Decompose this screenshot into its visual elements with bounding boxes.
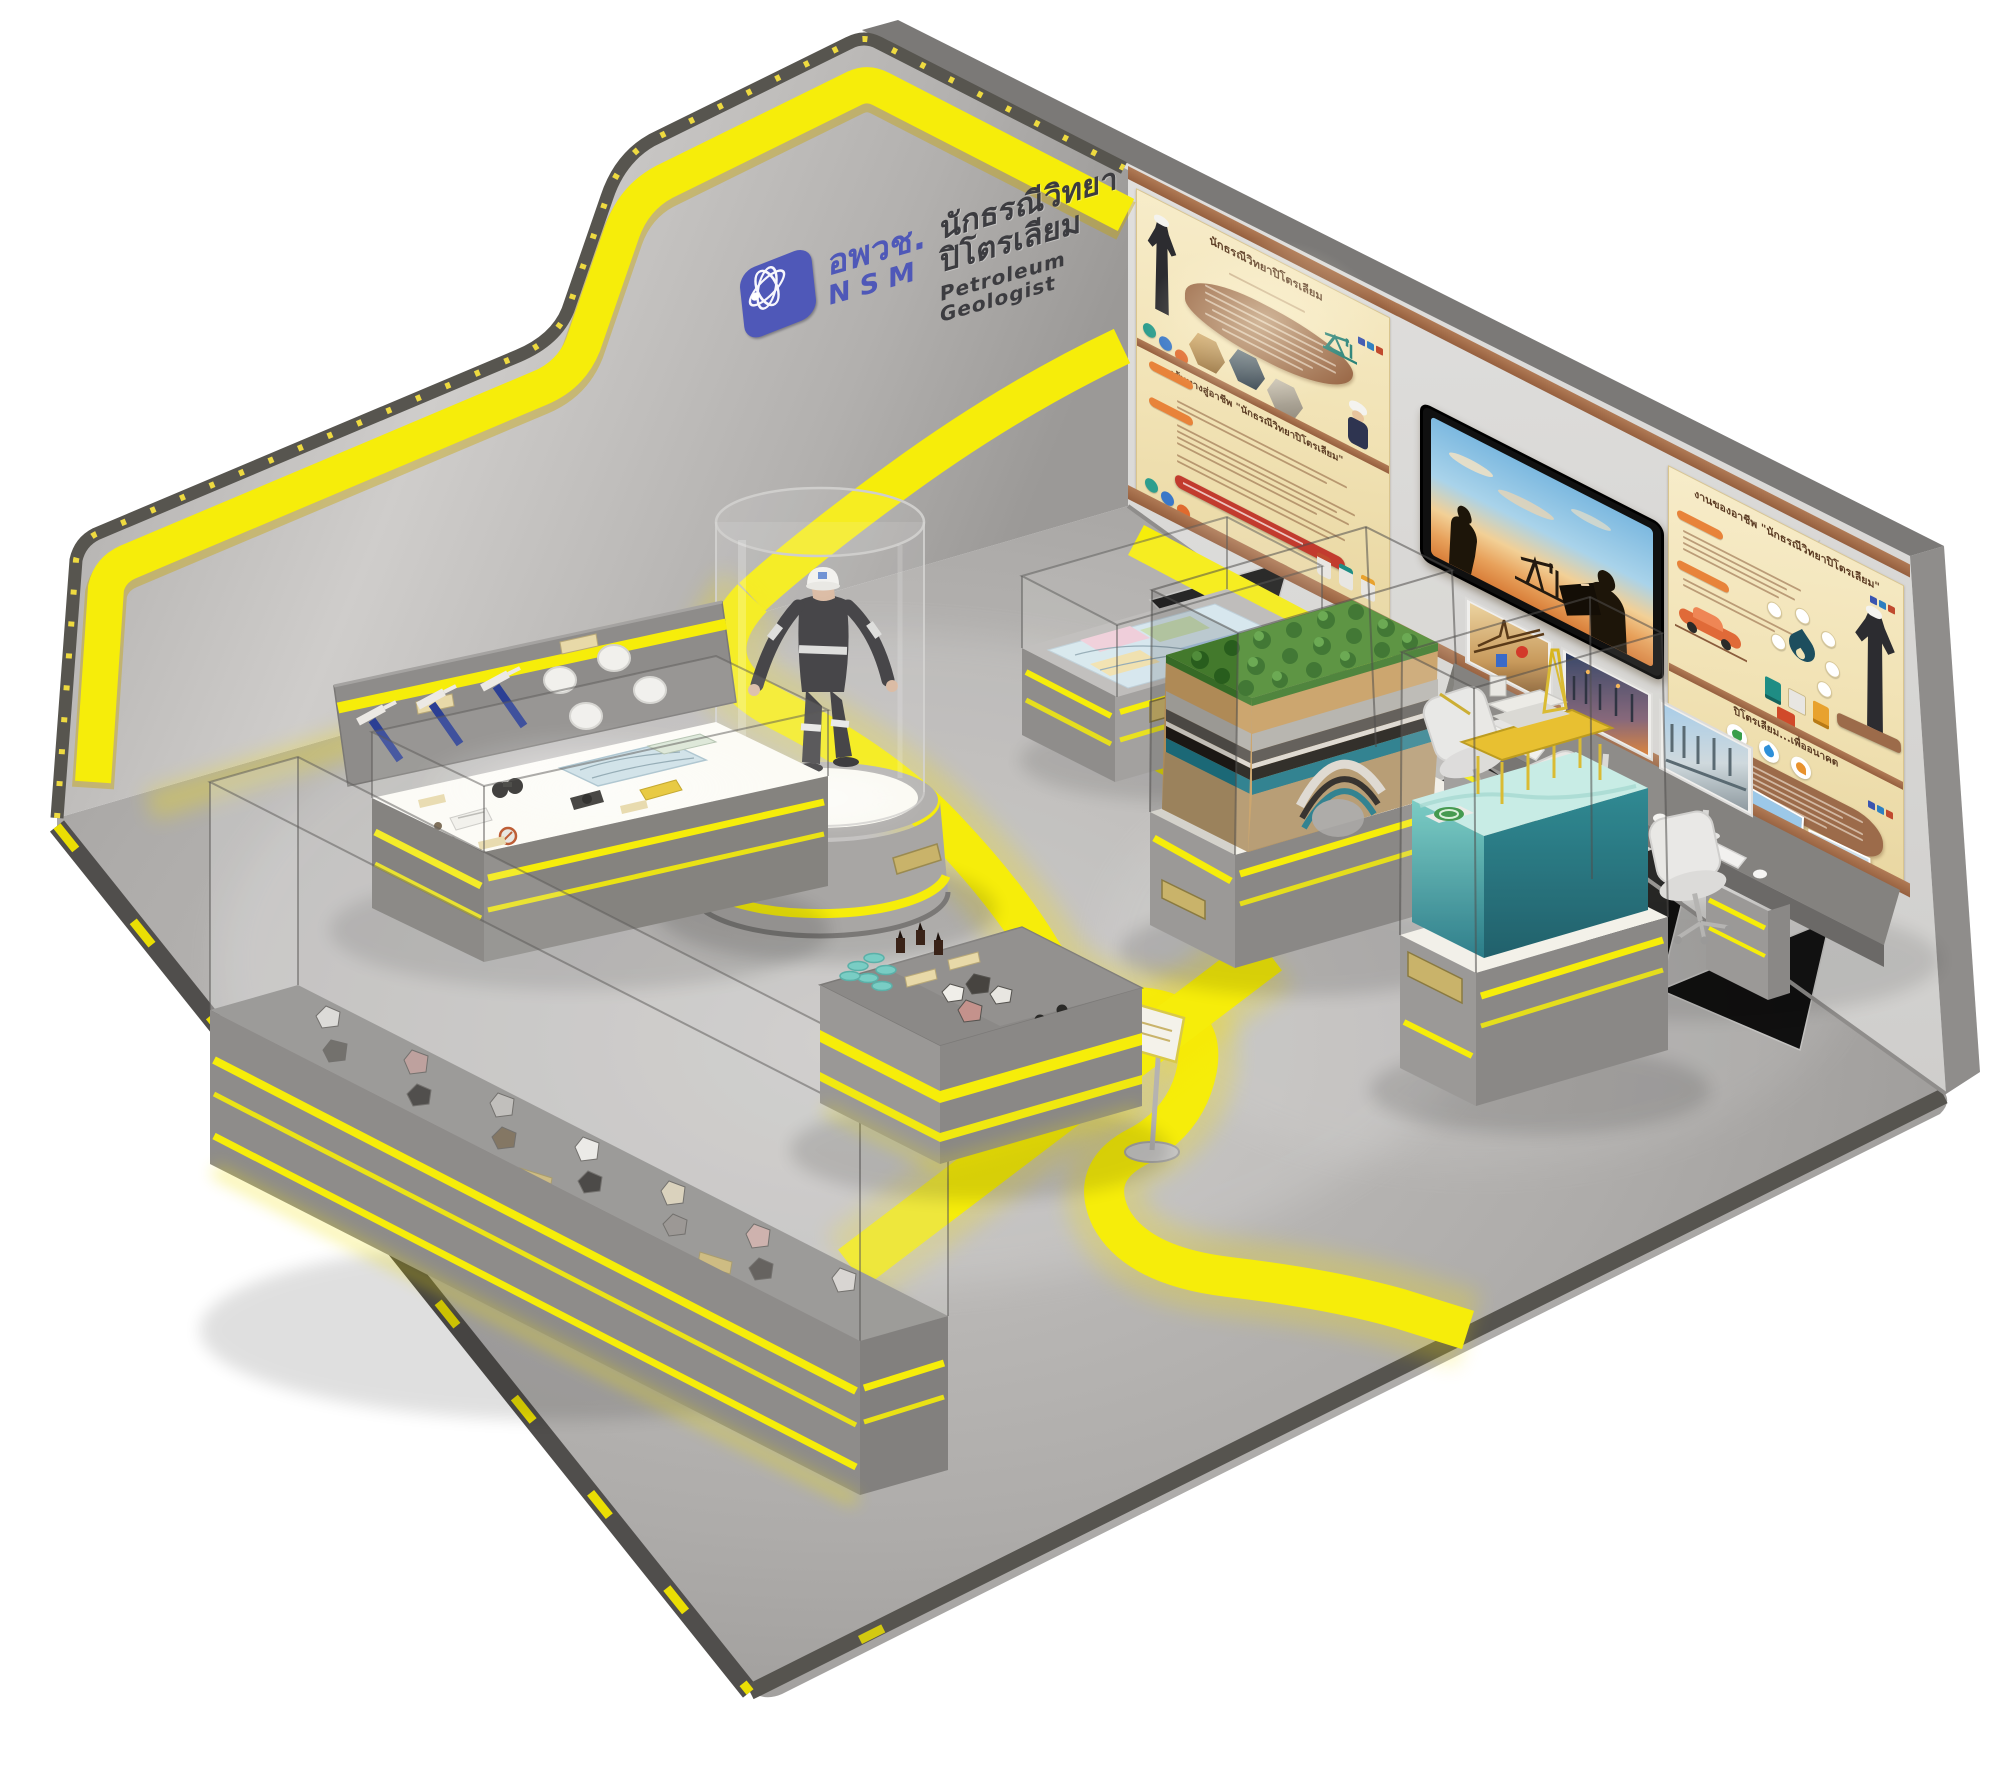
offshore-platform-model: [1370, 597, 1710, 1134]
wall-light-glare: [1144, 238, 1380, 406]
minerals-table: [790, 922, 1170, 1200]
exhibition-render: นักธรณีวิทยาปิโตรเลียม เส้นทางสู่อาชีพ "…: [0, 0, 2000, 1778]
exhibits-layer: [0, 0, 2000, 1778]
